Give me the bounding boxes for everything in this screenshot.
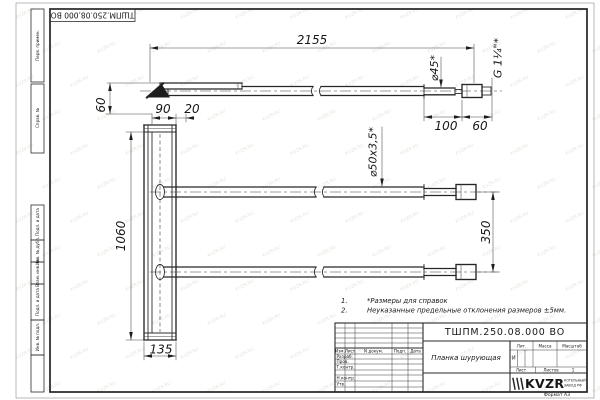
reversed-designation-text: ТШПМ.250.08.000 ВО [51,11,136,20]
watermark-text: KVZR.RU [592,176,600,190]
tb-logo-kvzr: KVZR [525,376,564,391]
watermark-text: KVZR.RU [262,176,282,190]
watermark-text: KVZR.RU [592,40,600,54]
watermark-text: KVZR.RU [317,312,337,326]
tb-part-name: Планка шурующая [431,354,500,362]
watermark-text: KVZR.RU [180,142,200,156]
watermark-text: KVZR.RU [125,346,145,360]
watermark-text: KVZR.RU [372,40,392,54]
watermark-text: KVZR.RU [592,312,600,326]
watermark-text: KVZR.RU [565,346,585,360]
watermark-text: KVZR.RU [42,176,62,190]
watermark-text: KVZR.RU [235,210,255,224]
tb-masshtab-header: Масштаб [562,344,582,349]
tb-col-data: Дата [410,349,421,354]
watermark-text: KVZR.RU [400,278,420,292]
tb-logo-sub1: КОТЕЛЬНЫЙ [564,378,586,383]
watermark-text: KVZR.RU [537,176,557,190]
watermark-text: KVZR.RU [290,278,310,292]
watermark-text: KVZR.RU [207,176,227,190]
watermark-text: KVZR.RU [235,346,255,360]
dim-tube-spacing: 350 [479,220,493,243]
watermark-text: KVZR.RU [262,108,282,122]
margin-column: Перв. примен. Справ. № Подп. и дата Инв.… [31,9,44,392]
watermark-text: KVZR.RU [70,142,90,156]
watermark-text: KVZR.RU [262,244,282,258]
dim-flange-width: 90 [155,102,171,116]
watermark-text: KVZR.RU [482,176,502,190]
watermark-text: KVZR.RU [455,210,475,224]
watermark-text: KVZR.RU [15,6,35,20]
watermark-text: KVZR.RU [482,244,502,258]
watermark-text: KVZR.RU [317,244,337,258]
watermark-text: KVZR.RU [42,108,62,122]
watermark-text: KVZR.RU [152,244,172,258]
watermark-text: KVZR.RU [180,210,200,224]
watermark-text: KVZR.RU [317,108,337,122]
tb-designation: ТШПМ.250.08.000 ВО [444,327,565,338]
paper-edge [16,3,594,398]
watermark-text: KVZR.RU [97,176,117,190]
watermark-text: KVZR.RU [372,312,392,326]
dim-lip-width: 20 [184,102,200,116]
watermark-text: KVZR.RU [400,210,420,224]
title-block: Изм. Лист N докум. Подп. Дата Разраб. Пр… [335,323,587,398]
technical-notes: 1. *Размеры для справок 2. Неуказанные п… [341,297,566,315]
margin-label-perv-primen: Перв. примен. [35,30,40,61]
dim-thread-spec: G 1¼"* [492,37,505,78]
dim-overall-length: 2155 [297,33,328,47]
watermark-text: KVZR.RU [70,346,90,360]
dim-plank-width: 135 [150,343,173,357]
watermark-text: KVZR.RU [125,142,145,156]
dim-blade-height: 60 [94,97,108,113]
watermark-text: KVZR.RU [372,244,392,258]
watermark-text: KVZR.RU [125,278,145,292]
watermark-text: KVZR.RU [97,312,117,326]
watermark-text: KVZR.RU [592,108,600,122]
margin-label-vzam-inv: Взам. инв. № [35,259,40,287]
note-2-number: 2. [341,307,348,315]
dim-tip-length: 100 [435,119,458,133]
watermark-text: KVZR.RU [345,210,365,224]
watermark-text: KVZR.RU [427,40,447,54]
tb-row-prov: Пров. [337,359,349,364]
tb-logo-sub2: ЗАВОД РФ [564,384,582,388]
watermark-text: KVZR.RU [592,380,600,394]
tb-row-utv: Утв. [337,382,346,387]
watermark-text: KVZR.RU [372,108,392,122]
watermark-text: KVZR.RU [180,346,200,360]
watermark-text: KVZR.RU [97,40,117,54]
watermark-text: KVZR.RU [180,74,200,88]
watermark-text: KVZR.RU [290,346,310,360]
watermark-text: KVZR.RU [427,312,447,326]
watermark-text: KVZR.RU [565,210,585,224]
tb-lit-value: И [512,356,516,362]
watermark-text: KVZR.RU [455,278,475,292]
watermark-text: KVZR.RU [207,312,227,326]
watermark-text: KVZR.RU [455,142,475,156]
watermark-text: KVZR.RU [565,74,585,88]
watermark-text: KVZR.RU [592,244,600,258]
logo-spring-icon [513,379,523,390]
watermark-text: KVZR.RU [262,40,282,54]
watermark-text: KVZR.RU [15,346,35,360]
tb-row-nkontr: Н.контр. [337,376,356,381]
watermark-text: KVZR.RU [482,312,502,326]
watermark-text: KVZR.RU [207,108,227,122]
watermark-text: KVZR.RU [565,278,585,292]
watermark-text: KVZR.RU [207,40,227,54]
tb-list-header: Лист [516,368,527,373]
watermark-text: KVZR.RU [70,74,90,88]
watermark-text: KVZR.RU [510,142,530,156]
tb-format-label: Формат А3 [544,392,570,398]
tb-col-list: Лист [345,349,356,354]
watermark-text: KVZR.RU [152,176,172,190]
top-view [140,83,502,98]
dim-thread-length: 60 [472,119,488,133]
drawing-sheet: KVZR.RUKVZR.RUKVZR.RUKVZR.RUKVZR.RUKVZR.… [0,0,600,400]
reversed-designation-stamp: ТШПМ.250.08.000 ВО [50,9,135,22]
watermark-text: KVZR.RU [262,312,282,326]
watermark-text: KVZR.RU [510,278,530,292]
note-1-text: *Размеры для справок [367,297,449,305]
watermark-text: KVZR.RU [537,108,557,122]
watermark-text: KVZR.RU [42,40,62,54]
watermark-text: KVZR.RU [235,142,255,156]
drawing-canvas: KVZR.RUKVZR.RUKVZR.RUKVZR.RUKVZR.RUKVZR.… [0,0,600,400]
watermark-text: KVZR.RU [290,142,310,156]
watermark-text: KVZR.RU [70,278,90,292]
tb-listov-header: Листов [543,368,559,373]
watermark-text: KVZR.RU [510,74,530,88]
tb-listov-value: 1 [572,368,575,373]
watermark-text: KVZR.RU [455,74,475,88]
margin-label-sprav-no: Справ. № [35,108,40,128]
watermark-text: KVZR.RU [565,142,585,156]
watermark-text: KVZR.RU [317,176,337,190]
watermark-text: KVZR.RU [15,278,35,292]
watermark-text: KVZR.RU [345,278,365,292]
dim-plank-length: 1060 [114,220,128,251]
watermark-text: KVZR.RU [510,210,530,224]
watermark-text: KVZR.RU [15,74,35,88]
note-1-number: 1. [341,297,348,305]
margin-label-podp-data-2: Подп. и дата [35,288,40,316]
tb-lit-header: Лит. [517,344,526,349]
tb-col-podp: Подп. [394,349,406,354]
watermark-text: KVZR.RU [152,312,172,326]
watermark-text: KVZR.RU [345,142,365,156]
watermark-text: KVZR.RU [537,244,557,258]
margin-label-inv-podl: Инв. № подл. [35,323,40,351]
watermark-text: KVZR.RU [15,210,35,224]
watermark-text: KVZR.RU [400,142,420,156]
margin-label-podp-data-1: Подп. и дата [35,208,40,236]
watermark-text: KVZR.RU [125,74,145,88]
watermark-text: KVZR.RU [427,244,447,258]
watermark-text: KVZR.RU [42,312,62,326]
tb-col-izm: Изм. [335,349,345,354]
watermark-text: KVZR.RU [15,142,35,156]
watermark-text: KVZR.RU [180,278,200,292]
dim-tip-diameter: ⌀45* [428,54,441,81]
watermark-text: KVZR.RU [207,244,227,258]
watermark-text: KVZR.RU [70,210,90,224]
note-2-text: Неуказанные предельные отклонения размер… [367,307,566,315]
watermark-text: KVZR.RU [42,244,62,258]
watermark-text: KVZR.RU [235,278,255,292]
tb-col-doc: N докум. [364,349,383,354]
dim-tube-section: ⌀50x3,5* [367,126,380,177]
tb-row-tkontr: Т.контр. [336,365,355,370]
watermark-text: KVZR.RU [537,40,557,54]
tb-massa-header: Масса [538,344,552,349]
watermark-text: KVZR.RU [537,312,557,326]
watermark-text: KVZR.RU [290,210,310,224]
